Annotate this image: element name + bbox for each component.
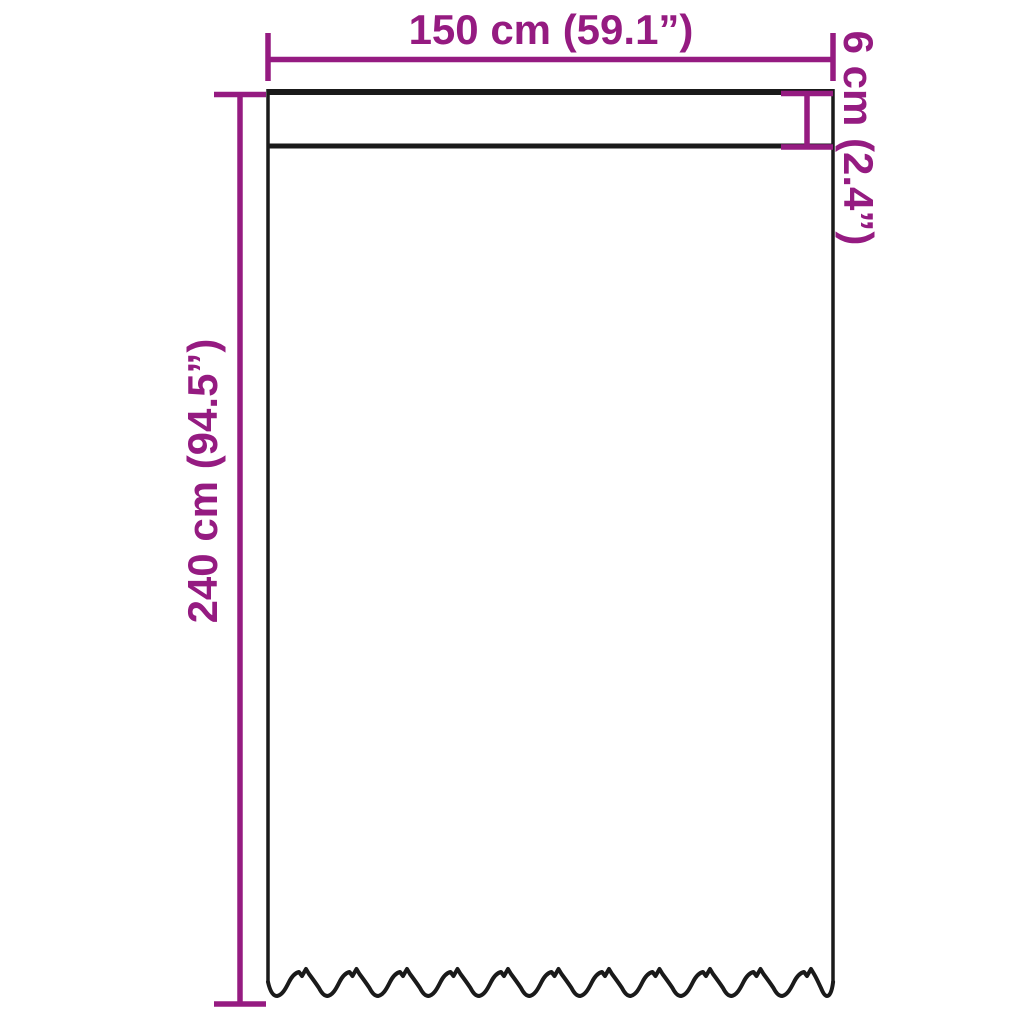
dimension-lines-group	[214, 33, 833, 1004]
curtain-outline-group	[268, 89, 833, 996]
width-dimension-label: 150 cm (59.1”)	[409, 9, 694, 51]
header-dimension-label: 6 cm (2.4”)	[837, 31, 879, 246]
curtain-bottom-wave	[268, 969, 833, 996]
curtain-dimension-diagram: 150 cm (59.1”) 240 cm (94.5”) 6 cm (2.4”…	[0, 0, 1024, 1024]
height-dimension-label: 240 cm (94.5”)	[182, 339, 224, 624]
